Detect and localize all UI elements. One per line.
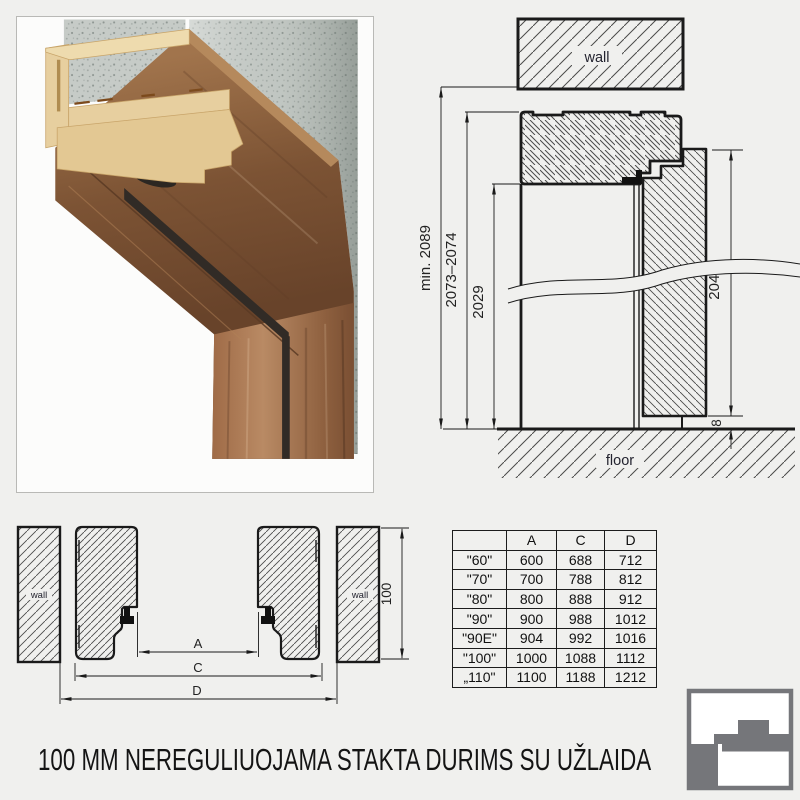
wall-label: wall xyxy=(584,50,610,66)
dim-frame-height: 2073–2074 xyxy=(443,232,460,307)
brand-logo-icon xyxy=(682,678,796,794)
table-row: "90E" 904 992 1016 xyxy=(453,628,657,648)
wall-left-block: wall xyxy=(18,527,60,662)
vertical-section-drawing: wall min. 2089 2073–2074 2029 2043 8 xyxy=(420,10,800,488)
horizontal-section-drawing: wall wall A C D xyxy=(0,515,440,710)
table-row: "100" 1000 1088 1112 xyxy=(453,648,657,668)
wall-right-block: wall xyxy=(337,527,379,662)
table-row: "60" 600 688 712 xyxy=(453,550,657,570)
col-c: C xyxy=(557,531,605,551)
table-row: „110" 1100 1188 1212 xyxy=(453,668,657,688)
dim-d-label: D xyxy=(192,683,201,698)
page-title: 100 MM NEREGULIUOJAMA STAKTA DURIMS SU U… xyxy=(38,742,651,778)
dim-c-label: C xyxy=(193,660,202,675)
col-d: D xyxy=(605,531,657,551)
table-row: "90" 900 988 1012 xyxy=(453,609,657,629)
dim-min-total: min. 2089 xyxy=(420,225,434,291)
dim-a-label: A xyxy=(194,636,203,651)
frame-profile-left xyxy=(76,527,137,659)
col-a: A xyxy=(507,531,557,551)
col-name xyxy=(453,531,507,551)
dim-floor-gap: 8 xyxy=(709,419,724,427)
table-row: "70" 700 788 812 xyxy=(453,570,657,590)
dim-opening-height: 2029 xyxy=(470,285,487,318)
floor: floor xyxy=(497,429,795,478)
size-table-header-row: A C D xyxy=(453,531,657,551)
wall-left-label: wall xyxy=(30,590,47,601)
frame-profile-right xyxy=(258,527,319,659)
wall-block: wall xyxy=(518,19,683,89)
frame-header-section xyxy=(521,112,681,184)
wall-right-label: wall xyxy=(351,590,368,601)
frame-corner-3d-drawing xyxy=(17,17,373,492)
dim-depth-label: 100 xyxy=(379,583,394,606)
size-table: A C D "60" 600 688 712 "70" 700 788 812 … xyxy=(452,530,657,688)
floor-label: floor xyxy=(606,453,634,469)
table-row: "80" 800 888 912 xyxy=(453,589,657,609)
frame-corner-3d-image xyxy=(16,16,374,493)
